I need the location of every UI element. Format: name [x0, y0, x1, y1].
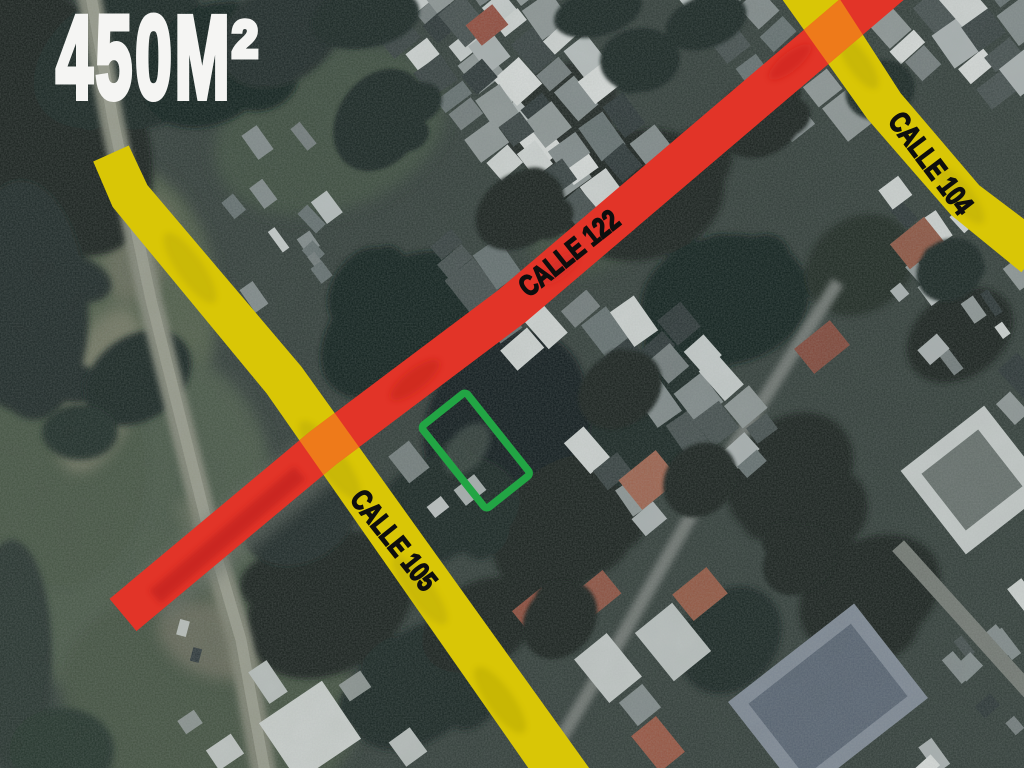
svg-text:450M: 450M	[56, 0, 232, 124]
svg-text:2: 2	[232, 11, 258, 69]
